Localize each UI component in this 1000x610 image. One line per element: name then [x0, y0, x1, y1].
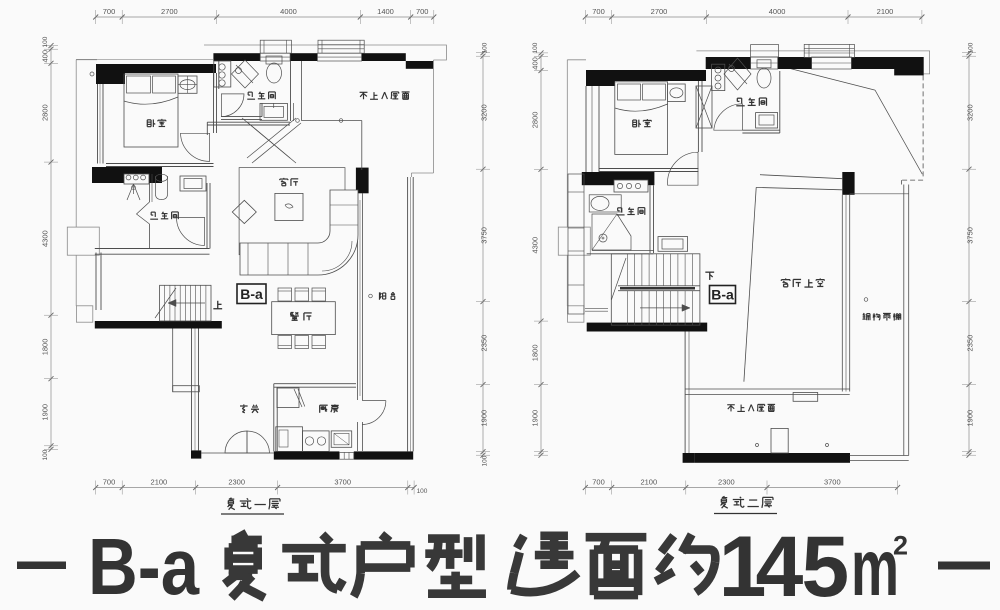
svg-text:400: 400	[40, 50, 49, 63]
svg-text:B-a: B-a	[711, 287, 734, 303]
svg-text:5: 5	[801, 519, 849, 610]
svg-text:m: m	[851, 523, 899, 610]
svg-text:700: 700	[592, 7, 605, 16]
svg-text:4300: 4300	[40, 230, 49, 247]
svg-text:B-a: B-a	[88, 522, 199, 610]
svg-text:2800: 2800	[531, 112, 540, 129]
svg-text:4000: 4000	[769, 7, 786, 16]
svg-text:4000: 4000	[280, 7, 297, 16]
svg-text:400: 400	[531, 57, 540, 70]
svg-text:2: 2	[893, 531, 908, 561]
svg-text:3750: 3750	[480, 227, 489, 244]
svg-text:1900: 1900	[479, 410, 488, 427]
svg-text:3200: 3200	[966, 104, 975, 121]
svg-text:100: 100	[482, 42, 489, 53]
svg-text:100: 100	[417, 488, 428, 495]
svg-text:100: 100	[968, 42, 975, 53]
svg-text:100: 100	[42, 449, 49, 460]
svg-text:B-a: B-a	[240, 286, 263, 302]
svg-text:2800: 2800	[41, 104, 50, 121]
svg-text:100: 100	[532, 42, 539, 53]
svg-text:700: 700	[103, 7, 116, 16]
svg-text:3750: 3750	[966, 227, 975, 244]
svg-text:2350: 2350	[480, 335, 489, 352]
svg-text:700: 700	[416, 7, 429, 16]
svg-text:3700: 3700	[334, 478, 351, 487]
svg-text:700: 700	[592, 478, 605, 487]
svg-text:100: 100	[482, 455, 489, 466]
svg-text:4: 4	[755, 519, 803, 610]
svg-text:700: 700	[103, 478, 116, 487]
svg-text:3700: 3700	[824, 478, 841, 487]
svg-text:4300: 4300	[531, 237, 540, 254]
svg-text:1900: 1900	[40, 404, 49, 421]
svg-text:1900: 1900	[530, 410, 539, 427]
svg-text:2300: 2300	[228, 478, 245, 487]
svg-text:1400: 1400	[377, 7, 394, 16]
svg-text:1800: 1800	[531, 345, 540, 362]
svg-text:1800: 1800	[40, 339, 49, 356]
svg-text:2700: 2700	[651, 7, 668, 16]
svg-text:2700: 2700	[161, 7, 178, 16]
svg-text:1900: 1900	[965, 410, 974, 427]
svg-text:2350: 2350	[966, 335, 975, 352]
svg-text:2100: 2100	[640, 478, 657, 487]
svg-text:100: 100	[42, 36, 49, 47]
svg-text:3200: 3200	[480, 104, 489, 121]
svg-text:2100: 2100	[151, 478, 168, 487]
svg-text:2100: 2100	[877, 7, 894, 16]
svg-text:2300: 2300	[718, 478, 735, 487]
